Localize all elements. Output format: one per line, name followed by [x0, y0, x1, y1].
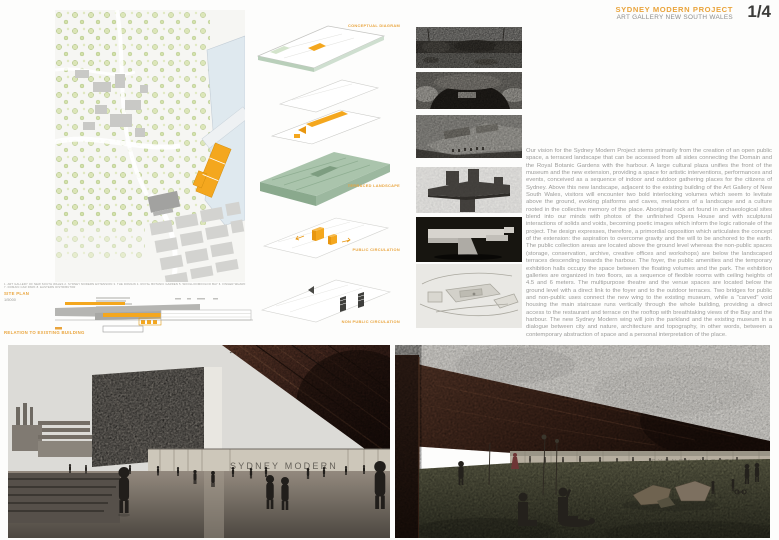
grass-foreground: [415, 459, 770, 538]
diagram-label-conceptual: CONCEPTUAL DIAGRAM: [250, 23, 400, 28]
carved-void-light-slot: [204, 367, 222, 459]
near-wall: [395, 355, 419, 538]
photo-concept-model: [416, 167, 522, 213]
render-parkland-view: SYDNEY MODERN: [395, 345, 770, 538]
facade-signage: SYDNEY MODERN: [230, 461, 338, 471]
section-existing-building: [161, 310, 251, 320]
diagram-public-circulation: [264, 218, 388, 258]
photo-plan-sketch: [416, 264, 522, 328]
section-tick-marks: [175, 298, 218, 300]
page-subtitle: ART GALLERY NEW SOUTH WALES: [617, 14, 733, 21]
photo-rock-art-site: [416, 27, 522, 68]
page-number: 1/4: [747, 2, 771, 22]
section-scale-box: [103, 326, 143, 332]
presentation-board: SYDNEY MODERN PROJECT ART GALLERY NEW SO…: [0, 0, 779, 540]
plaza-steps: [8, 473, 120, 523]
section-new-wing-upper: [65, 302, 125, 305]
diagram-non-public-circulation: [262, 280, 390, 322]
photo-opera-house-model: [416, 115, 522, 158]
site-plan-label: SITE PLAN: [4, 291, 29, 296]
project-description: Our vision for the Sydney Modern Project…: [526, 148, 772, 339]
diagram-conceptual: [258, 26, 384, 72]
axonometric-diagrams: [250, 14, 402, 336]
site-plan-legend: 1. ART GALLERY OF NEW SOUTH WALES 2. SYD…: [4, 283, 246, 289]
page-title: SYDNEY MODERN PROJECT: [615, 5, 733, 14]
site-plan-scale: 1/5000: [4, 297, 16, 302]
section-drawing: [55, 296, 255, 334]
site-plan-map: [55, 10, 245, 282]
glass-facade: SYDNEY MODERN: [148, 449, 390, 473]
relation-label: RELATION TO EXISTING BUILDING: [4, 330, 85, 335]
diagram-label-non-public: NON PUBLIC CIRCULATION: [250, 319, 400, 324]
photo-section-model: [416, 217, 522, 262]
photo-cave: [416, 72, 522, 109]
render-plaza-view: SYDNEY MODERN: [8, 345, 390, 538]
diagram-label-public: PUBLIC CIRCULATION: [250, 247, 400, 252]
diagram-label-terraced: TERRACED LANDSCAPE: [250, 183, 400, 188]
